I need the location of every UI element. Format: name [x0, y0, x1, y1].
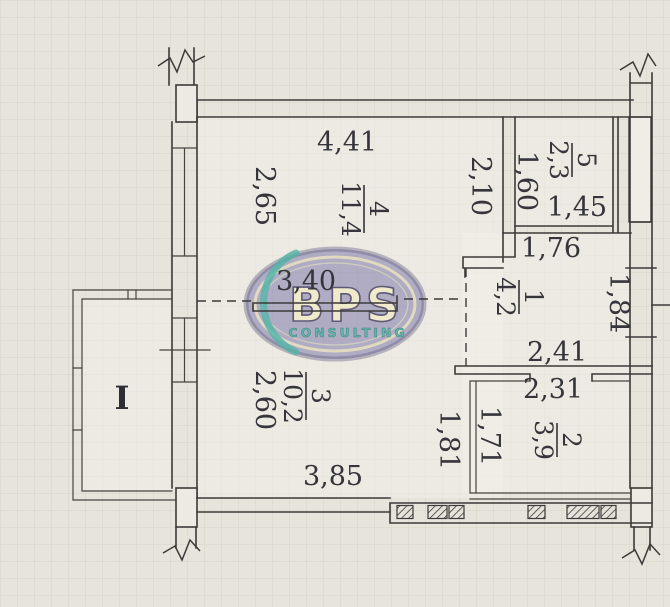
top-left-column-block [176, 85, 197, 122]
room1-number: 1 [519, 289, 548, 305]
room4-area: 11,4 [336, 181, 365, 237]
dim-room3-bottom: 3,85 [303, 461, 363, 492]
dim-room2-left: 1,71 [474, 406, 505, 466]
dim-room3-left: 2,60 [249, 370, 280, 430]
logo-subtitle-text: CONSULTING [288, 325, 407, 340]
dim-room1-right: 1,84 [603, 273, 634, 333]
room3-area: 10,2 [278, 368, 307, 424]
floor-plan-page: BPS CONSULTING [0, 0, 670, 607]
room5-area: 2,3 [544, 140, 573, 180]
balcony-label: I [115, 379, 130, 417]
room2-number: 2 [557, 432, 586, 448]
room3-number: 3 [306, 388, 335, 404]
room4-number: 4 [364, 201, 393, 217]
dim-room5-width: 1,45 [547, 192, 607, 223]
dim-room5-left: 1,60 [511, 151, 542, 211]
vent-shaft [629, 117, 651, 222]
dim-room2-top: 2,31 [523, 374, 583, 405]
dim-room1-bottom: 2,41 [527, 337, 587, 368]
dim-room4-width: 4,41 [317, 127, 377, 158]
bottom-left-column-block [176, 488, 197, 527]
dim-room4-right: 2,10 [465, 156, 496, 216]
dim-room1-top: 1,76 [521, 233, 581, 264]
dim-room3-right: 1,81 [433, 410, 464, 470]
room1-area: 4,2 [491, 277, 520, 317]
room2-area: 3,9 [529, 420, 558, 460]
room5-number: 5 [572, 152, 601, 168]
dim-room4-left: 2,65 [249, 166, 280, 226]
dim-room4-inner: 3,40 [276, 266, 336, 297]
bottom-right-column-block [631, 488, 652, 527]
floorplan-svg: BPS CONSULTING [0, 0, 670, 607]
